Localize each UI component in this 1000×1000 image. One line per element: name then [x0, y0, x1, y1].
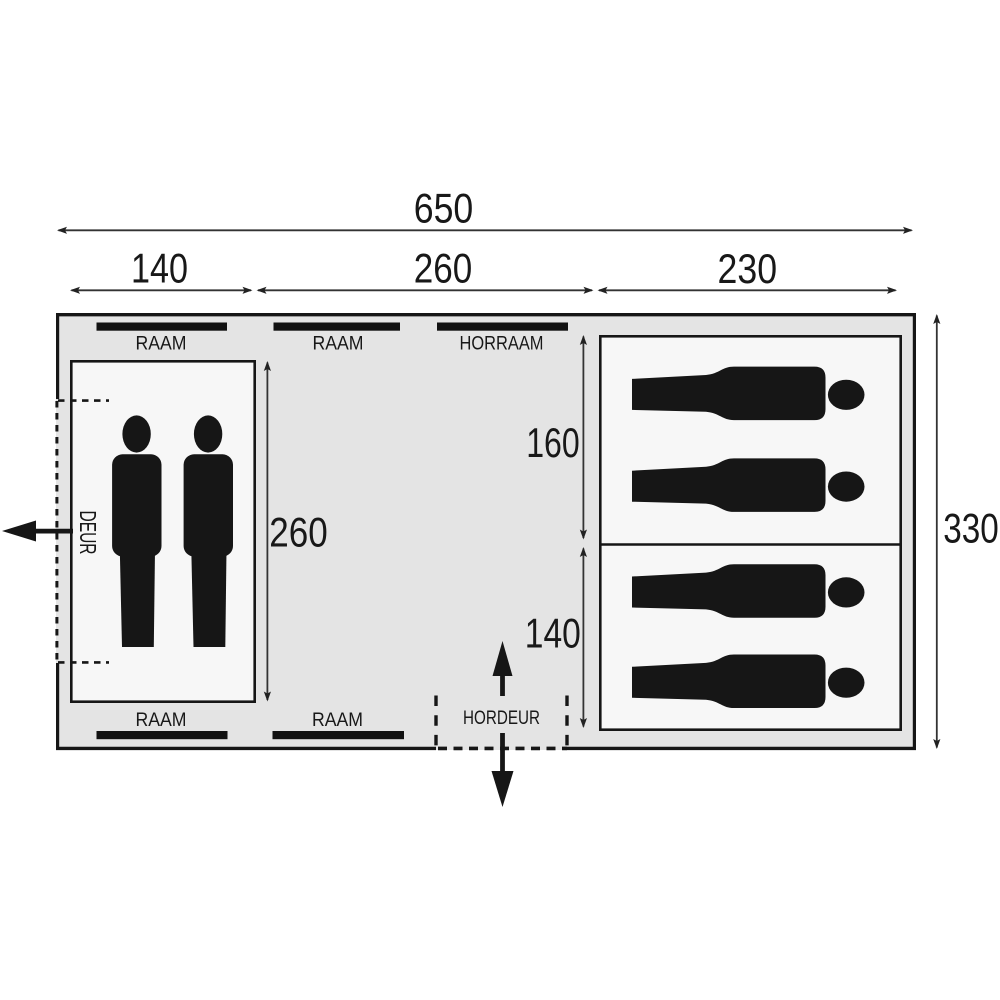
- svg-text:160: 160: [526, 419, 580, 466]
- svg-text:260: 260: [414, 245, 473, 292]
- svg-text:HORDEUR: HORDEUR: [463, 707, 540, 729]
- svg-text:140: 140: [131, 245, 188, 292]
- svg-text:260: 260: [269, 509, 328, 556]
- svg-text:DEUR: DEUR: [75, 511, 101, 555]
- svg-text:140: 140: [525, 610, 581, 657]
- svg-text:RAAM: RAAM: [136, 709, 187, 731]
- svg-text:330: 330: [943, 505, 999, 552]
- svg-text:RAAM: RAAM: [136, 332, 187, 354]
- svg-text:HORRAAM: HORRAAM: [460, 332, 544, 354]
- svg-text:650: 650: [414, 185, 474, 232]
- svg-text:230: 230: [718, 245, 778, 292]
- svg-text:RAAM: RAAM: [312, 709, 363, 731]
- svg-text:RAAM: RAAM: [313, 332, 364, 354]
